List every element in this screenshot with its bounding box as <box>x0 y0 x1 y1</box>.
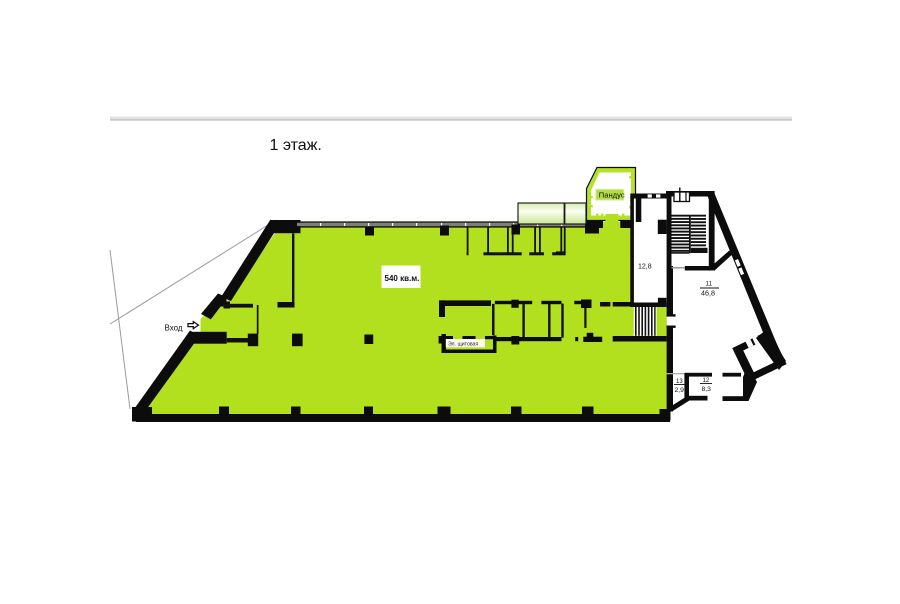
svg-text:Пандус: Пандус <box>599 190 625 199</box>
svg-text:46,8: 46,8 <box>701 289 715 298</box>
svg-text:1 этаж.: 1 этаж. <box>270 137 322 154</box>
svg-text:12,8: 12,8 <box>638 264 652 271</box>
svg-text:8,3: 8,3 <box>702 386 712 393</box>
svg-text:11: 11 <box>706 281 713 288</box>
svg-text:540 кв.м.: 540 кв.м. <box>385 274 420 283</box>
svg-text:Эл. щитовая: Эл. щитовая <box>448 341 478 347</box>
svg-text:Вход: Вход <box>165 324 183 333</box>
svg-text:2,9: 2,9 <box>675 387 685 394</box>
